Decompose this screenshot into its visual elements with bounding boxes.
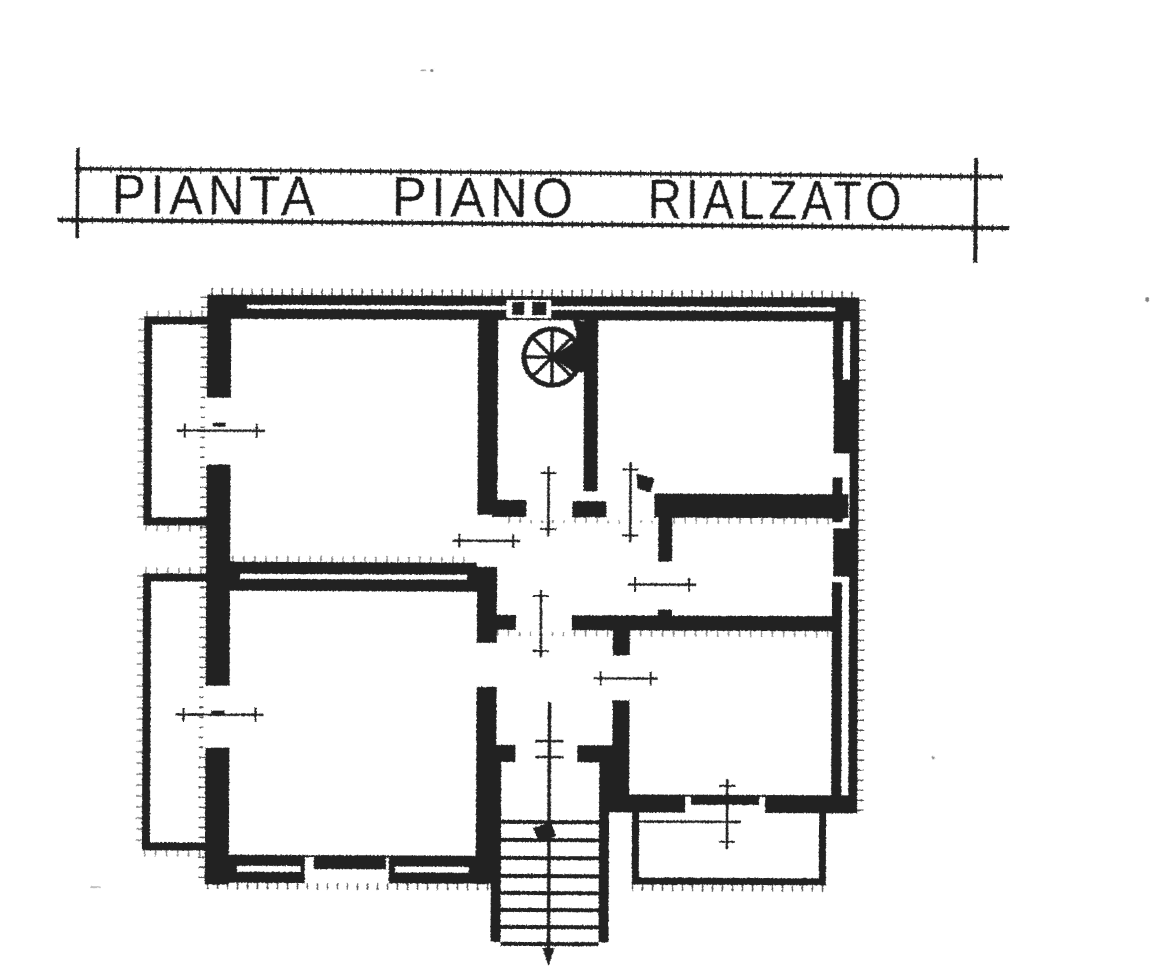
entrance-staircase xyxy=(490,702,609,967)
title-banner: PIANTA PIANO RIALZATO xyxy=(57,148,1010,263)
window-bottom-left-room-west xyxy=(175,681,263,751)
door-opening-bottom-left-room xyxy=(474,643,500,687)
stair-direction-arrow-icon xyxy=(542,948,554,966)
page-title: PIANTA PIANO RIALZATO xyxy=(112,162,907,232)
window-bottom-left-room xyxy=(305,855,389,883)
door-opening-entrance-hall-north xyxy=(516,612,572,632)
terrace-lower-right xyxy=(632,812,826,885)
wall-flue-notch xyxy=(506,300,551,318)
balcony-lower-left xyxy=(142,573,206,850)
title-word-2: PIANO xyxy=(392,165,579,230)
balcony-upper-left xyxy=(143,316,207,525)
wall-segment-left xyxy=(205,295,232,885)
title-word-3: RIALZATO xyxy=(647,167,906,232)
window-bottom-right-room xyxy=(685,795,765,813)
window-top-left-room xyxy=(177,393,265,468)
stair-wall-west xyxy=(491,762,502,942)
banner-right-end-bar xyxy=(973,158,978,263)
window-middle-right-room xyxy=(830,522,857,582)
floor-plan-drawing: PIANTA PIANO RIALZATO xyxy=(0,0,1158,970)
wall-segment-right xyxy=(829,297,859,813)
door-opening-landing xyxy=(515,743,577,764)
window-mark-terrace xyxy=(719,779,735,849)
spiral-staircase-icon xyxy=(524,318,590,385)
banner-left-end-bar xyxy=(75,148,79,238)
stair-wall-east xyxy=(599,762,610,942)
title-word-1: PIANTA xyxy=(112,162,321,227)
door-swing-flag-icon xyxy=(636,473,654,492)
scanned-floor-plan-page: PIANTA PIANO RIALZATO xyxy=(0,0,1158,970)
